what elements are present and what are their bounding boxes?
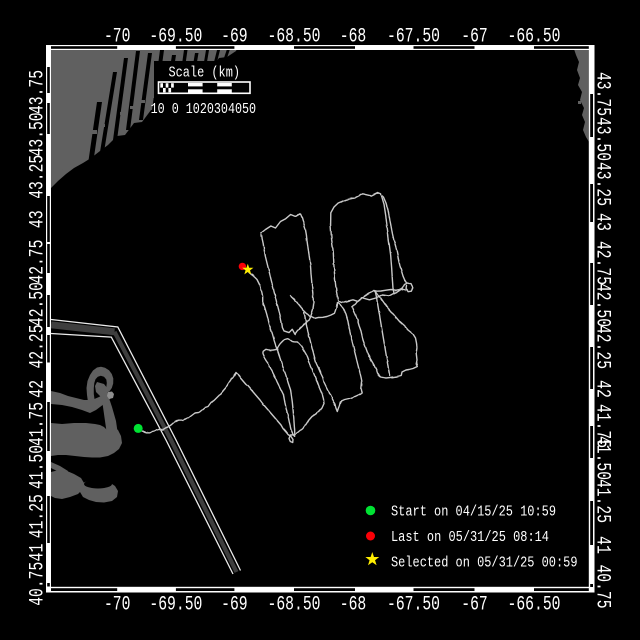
svg-text:43: 43 [591,213,614,231]
svg-text:-69: -69 [221,26,248,49]
svg-text:-68: -68 [340,26,367,49]
svg-text:42.75: 42.75 [27,240,50,284]
svg-text:41.50: 41.50 [591,436,614,480]
svg-text:43.25: 43.25 [591,162,614,206]
svg-text:Last on 05/31/25 08:14: Last on 05/31/25 08:14 [391,529,549,546]
svg-text:41.50: 41.50 [27,445,50,489]
svg-text:10 0 1020304050: 10 0 1020304050 [151,101,257,118]
svg-text:41: 41 [27,544,50,562]
svg-text:43.50: 43.50 [27,112,50,156]
svg-text:-66.50: -66.50 [508,26,561,49]
svg-text:43.25: 43.25 [27,155,50,199]
svg-text:-69: -69 [221,593,248,616]
svg-text:41.25: 41.25 [27,494,50,538]
svg-text:42: 42 [27,380,50,398]
svg-text:-67: -67 [461,593,488,616]
svg-text:Selected on 05/31/25 00:59: Selected on 05/31/25 00:59 [391,554,578,571]
svg-text:43.75: 43.75 [591,72,614,116]
svg-text:-67.50: -67.50 [387,593,440,616]
svg-text:-66.50: -66.50 [508,593,561,616]
svg-text:41.75: 41.75 [27,402,50,446]
svg-text:42.75: 42.75 [591,241,614,285]
svg-text:43: 43 [27,210,50,228]
svg-text:40.75: 40.75 [591,565,614,609]
svg-text:-70: -70 [104,593,131,616]
svg-text:-68.50: -68.50 [268,593,321,616]
svg-text:-68.50: -68.50 [268,26,321,49]
svg-text:43.50: 43.50 [591,117,614,161]
svg-text:42.50: 42.50 [27,282,50,326]
svg-text:43.75: 43.75 [27,70,50,114]
svg-text:-67: -67 [461,26,488,49]
svg-text:-70: -70 [104,26,131,49]
svg-text:41: 41 [591,536,614,554]
svg-text:42: 42 [591,380,614,398]
svg-text:42.50: 42.50 [591,283,614,327]
svg-text:-68: -68 [340,593,367,616]
svg-text:41.25: 41.25 [591,479,614,523]
svg-text:Scale (km): Scale (km) [169,65,241,82]
svg-text:40.75: 40.75 [27,562,50,606]
svg-text:-67.50: -67.50 [387,26,440,49]
svg-text:Start on 04/15/25 10:59: Start on 04/15/25 10:59 [391,503,556,520]
svg-text:-69.50: -69.50 [149,593,202,616]
svg-text:42.25: 42.25 [591,325,614,369]
svg-text:-69.50: -69.50 [149,26,202,49]
svg-text:42.25: 42.25 [27,325,50,369]
